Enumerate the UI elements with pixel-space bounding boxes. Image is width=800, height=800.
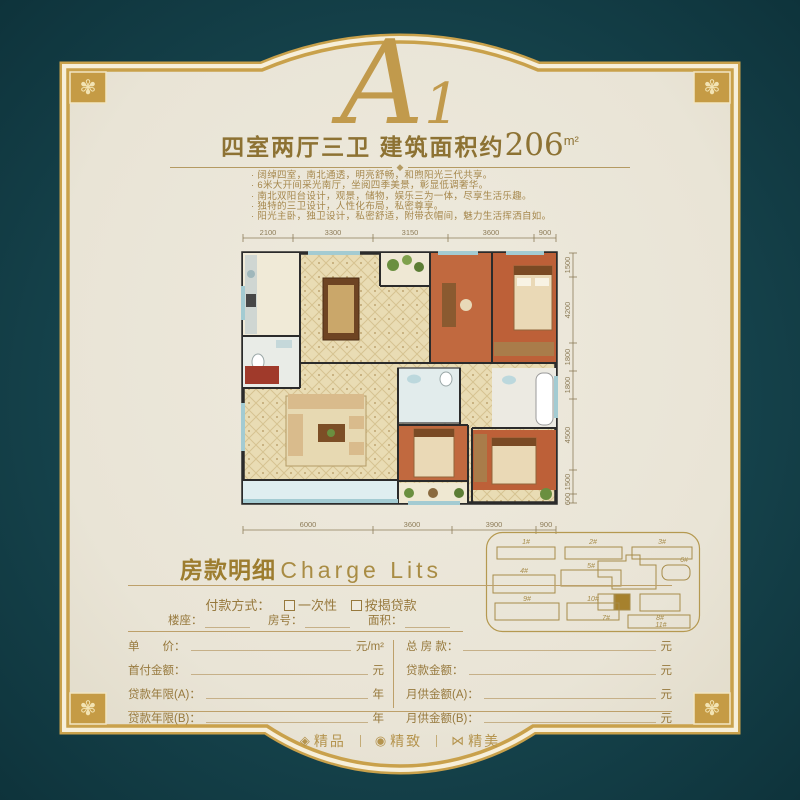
input-line[interactable] <box>484 713 656 723</box>
footer-slogan: ◈ 精品 ◉ 精致 ⋈ 精美 <box>0 731 800 751</box>
svg-text:3900: 3900 <box>486 520 503 529</box>
svg-text:1800: 1800 <box>563 349 572 366</box>
svg-text:3600: 3600 <box>483 228 500 237</box>
medal-icon: ◉ <box>375 733 386 749</box>
form-row-unit-price: 单 价：元/m² <box>128 637 384 654</box>
svg-text:10#: 10# <box>587 596 599 603</box>
unit-info-row: 楼座： 房号： 面积： <box>168 612 468 628</box>
building-field-label: 楼座： <box>168 612 203 628</box>
svg-text:4500: 4500 <box>563 427 572 444</box>
floor-plan: 2100 3300 3150 3600 900 1500 4200 1800 1… <box>228 228 608 548</box>
svg-text:3300: 3300 <box>325 228 342 237</box>
payment-method-label: 付款方式： <box>205 598 270 613</box>
floor-plan-rooms <box>243 253 556 503</box>
input-line[interactable] <box>206 689 368 699</box>
divider-line <box>128 631 463 632</box>
brochure-page: ✾ ✾ ✾ ✾ A1 四室两厅三卫 建筑面积约206m² ◆ 阔绰 <box>0 0 800 800</box>
form-row-total-price: 总 房 款：元 <box>406 637 672 654</box>
area-field-label: 面积： <box>368 612 403 628</box>
gem-icon: ◈ <box>300 733 310 749</box>
feature-list: 阔绰四室，南北通透，明亮舒畅，和煦阳光三代共享。 6米大开间采光南厅，坐阅四季美… <box>251 171 571 222</box>
footer-label: 精美 <box>468 731 500 751</box>
input-line[interactable] <box>191 665 368 675</box>
title-area-unit: m² <box>564 133 579 148</box>
form-row-monthly-a: 月供金额(A)：元 <box>406 685 672 702</box>
option-mortgage-label: 按揭贷款 <box>365 598 417 613</box>
option-one-time-label: 一次性 <box>298 598 337 613</box>
charge-right-column: 总 房 款：元 贷款金额：元 月供金额(A)：元 月供金额(B)：元 <box>406 637 672 733</box>
input-line[interactable] <box>463 641 655 651</box>
footer-label: 精致 <box>390 731 422 751</box>
flower-icon: ✾ <box>704 698 721 720</box>
svg-text:4200: 4200 <box>563 302 572 319</box>
input-line[interactable] <box>206 713 368 723</box>
footer-item: ◈ 精品 <box>300 731 346 751</box>
living-room-rug <box>245 366 279 384</box>
svg-text:3150: 3150 <box>402 228 419 237</box>
column-divider <box>393 640 394 708</box>
input-line[interactable] <box>484 689 656 699</box>
charge-left-column: 单 价：元/m² 首付金额：元 贷款年限(A)：年 贷款年限(B)：年 <box>128 637 384 733</box>
plan-code: A1 <box>0 26 800 142</box>
divider-line <box>128 711 672 712</box>
svg-text:2#: 2# <box>588 539 597 546</box>
page-title: 四室两厅三卫 建筑面积约206m² <box>0 127 800 163</box>
corner-ornament-bottom-right: ✾ <box>694 693 730 724</box>
svg-text:1#: 1# <box>522 539 530 546</box>
svg-text:7#: 7# <box>602 615 610 622</box>
svg-text:8#: 8# <box>656 615 664 622</box>
svg-text:1500: 1500 <box>563 474 572 491</box>
bowtie-icon: ⋈ <box>451 733 464 749</box>
footer-label: 精品 <box>314 731 346 751</box>
footer-separator <box>436 735 437 747</box>
form-row-down-payment: 首付金额：元 <box>128 661 384 678</box>
svg-text:1500: 1500 <box>563 257 572 274</box>
svg-text:5#: 5# <box>587 563 595 570</box>
room-input-line[interactable] <box>305 617 351 628</box>
charge-title-zh: 房款明细 <box>180 557 276 583</box>
flower-icon: ✾ <box>80 698 97 720</box>
building-input-line[interactable] <box>205 617 251 628</box>
input-line[interactable] <box>191 641 351 651</box>
charge-title-en: Charge Lits <box>280 557 442 583</box>
checkbox-one-time[interactable] <box>284 600 295 611</box>
svg-text:2100: 2100 <box>260 228 277 237</box>
highlighted-building <box>615 594 630 610</box>
svg-text:1800: 1800 <box>563 377 572 394</box>
svg-text:900: 900 <box>540 520 553 529</box>
title-area-number: 206 <box>505 127 564 163</box>
svg-text:3600: 3600 <box>404 520 421 529</box>
svg-text:6#: 6# <box>680 557 688 564</box>
area-input-line[interactable] <box>405 617 451 628</box>
site-plan: 1# 2# 3# 4# 5# 6# 7# 8# 9# 10# 11# <box>485 531 701 633</box>
charge-section-title: 房款明细 Charge Lits <box>128 551 494 585</box>
feature-item: 阳光主卧，独卫设计，私密舒适，附带衣帽间，魅力生活挥洒自如。 <box>251 212 571 222</box>
footer-item: ⋈ 精美 <box>451 731 500 751</box>
room-field-label: 房号： <box>268 612 303 628</box>
form-row-loan-amount: 贷款金额：元 <box>406 661 672 678</box>
footer-separator <box>360 735 361 747</box>
svg-text:9#: 9# <box>523 596 531 603</box>
svg-text:3#: 3# <box>658 539 666 546</box>
svg-text:4#: 4# <box>520 568 528 575</box>
checkbox-mortgage[interactable] <box>351 600 362 611</box>
input-line[interactable] <box>469 665 656 675</box>
svg-text:11#: 11# <box>655 622 666 629</box>
svg-text:6000: 6000 <box>300 520 317 529</box>
footer-item: ◉ 精致 <box>375 731 422 751</box>
form-row-loan-years-a: 贷款年限(A)：年 <box>128 685 384 702</box>
title-text: 四室两厅三卫 建筑面积约 <box>221 134 504 160</box>
svg-text:600: 600 <box>563 493 572 506</box>
divider-line <box>128 585 672 586</box>
corner-ornament-bottom-left: ✾ <box>70 693 106 724</box>
svg-text:900: 900 <box>539 228 552 237</box>
